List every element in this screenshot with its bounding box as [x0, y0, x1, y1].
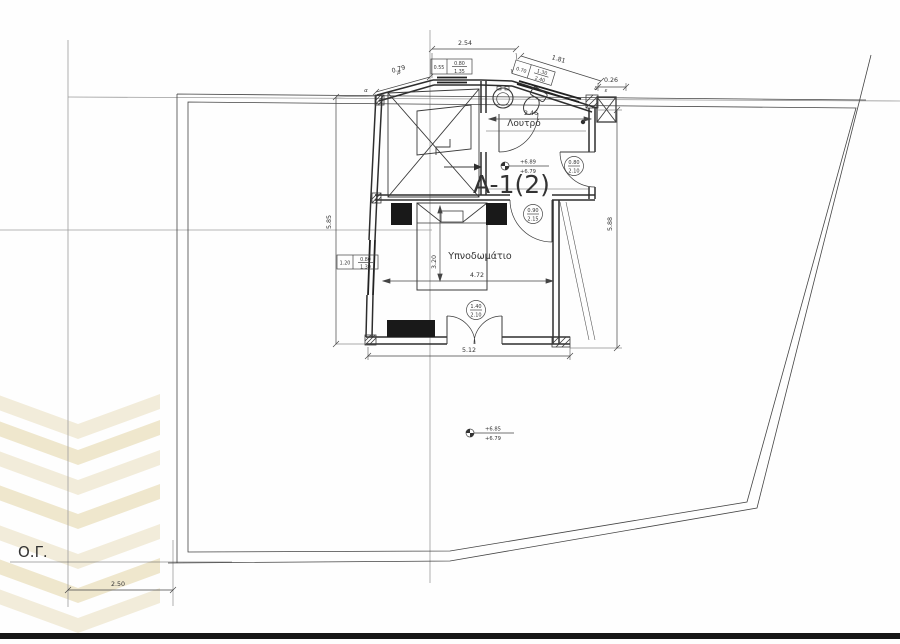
labels: A-1(2) Λουτρό Υπνοδωμάτιο Ο.Γ. α β γ δ ε: [18, 68, 608, 561]
svg-text:2.40: 2.40: [534, 75, 546, 84]
vertex-b: β: [397, 70, 401, 76]
stairwell: [388, 89, 482, 197]
shaft-box: [597, 97, 616, 122]
svg-text:+6.85: +6.85: [485, 427, 501, 433]
dim-bed-depth: 3.20: [431, 255, 438, 269]
dim-pier: 0.26: [604, 77, 618, 84]
svg-text:1.20: 1.20: [340, 261, 351, 267]
dim-bed-width: 4.72: [470, 272, 484, 279]
room-label-bathroom: Λουτρό: [507, 118, 541, 129]
window-tag-west: 1.20 0.80 1.30: [337, 255, 378, 271]
dim-east: 5.88: [607, 217, 614, 231]
svg-text:2.15: 2.15: [527, 217, 538, 223]
svg-text:0.90: 0.90: [527, 208, 538, 214]
svg-text:1.30: 1.30: [360, 265, 371, 271]
vertex-e: ε: [605, 88, 608, 94]
door-tag-hall: 0.80 2.10: [565, 157, 584, 176]
building-line-label: Ο.Γ.: [18, 543, 48, 561]
level-marker-terrace: +6.85 +6.79: [466, 427, 514, 443]
sheet-border-bottom: [0, 633, 900, 639]
floor-plan-sheet: 2.54 0.79 1.81 0.26 2.46 5.85 5.88 5.12 …: [0, 0, 900, 644]
axis-grid: [0, 30, 900, 607]
svg-text:2.10: 2.10: [470, 313, 481, 319]
dimension-texts: 2.54 0.79 1.81 0.26 2.46 5.85 5.88 5.12 …: [111, 40, 618, 588]
svg-text:1.40: 1.40: [470, 304, 481, 310]
svg-text:2.10: 2.10: [568, 169, 579, 175]
dim-west: 5.85: [326, 215, 333, 229]
vertex-c: γ: [510, 68, 514, 74]
dim-setback: 2.50: [111, 581, 125, 588]
floor-plan-canvas: 2.54 0.79 1.81 0.26 2.46 5.85 5.88 5.12 …: [0, 0, 900, 644]
door-swings: [447, 113, 595, 344]
svg-text:0.80: 0.80: [454, 61, 465, 67]
dim-south: 5.12: [462, 347, 476, 354]
room-label-bedroom: Υπνοδωμάτιο: [447, 251, 512, 262]
dim-top: 2.54: [458, 40, 472, 47]
watermark-logo: [0, 394, 160, 633]
dimension-lines: [65, 46, 629, 593]
door-tag-bedroom: 0.90 2.15: [524, 205, 543, 224]
dim-ne: 1.81: [551, 54, 566, 65]
svg-text:0.55: 0.55: [434, 65, 445, 71]
svg-text:1.35: 1.35: [454, 69, 465, 75]
nightstand-left: [391, 203, 412, 225]
svg-text:0.80: 0.80: [360, 257, 371, 263]
svg-text:+6.89: +6.89: [520, 160, 536, 166]
nightstand-right: [486, 203, 507, 225]
svg-text:0.70: 0.70: [515, 66, 527, 75]
dim-bath: 2.46: [524, 110, 538, 117]
svg-text:+6.79: +6.79: [485, 436, 501, 442]
unit-label: A-1(2): [473, 170, 550, 199]
dresser: [387, 320, 435, 337]
window-tag-top: 0.55 0.80 1.35: [431, 59, 472, 75]
door-tag-balcony: 1.40 2.10: [467, 301, 486, 320]
svg-text:0.80: 0.80: [568, 160, 579, 166]
vertex-a: α: [364, 88, 368, 94]
